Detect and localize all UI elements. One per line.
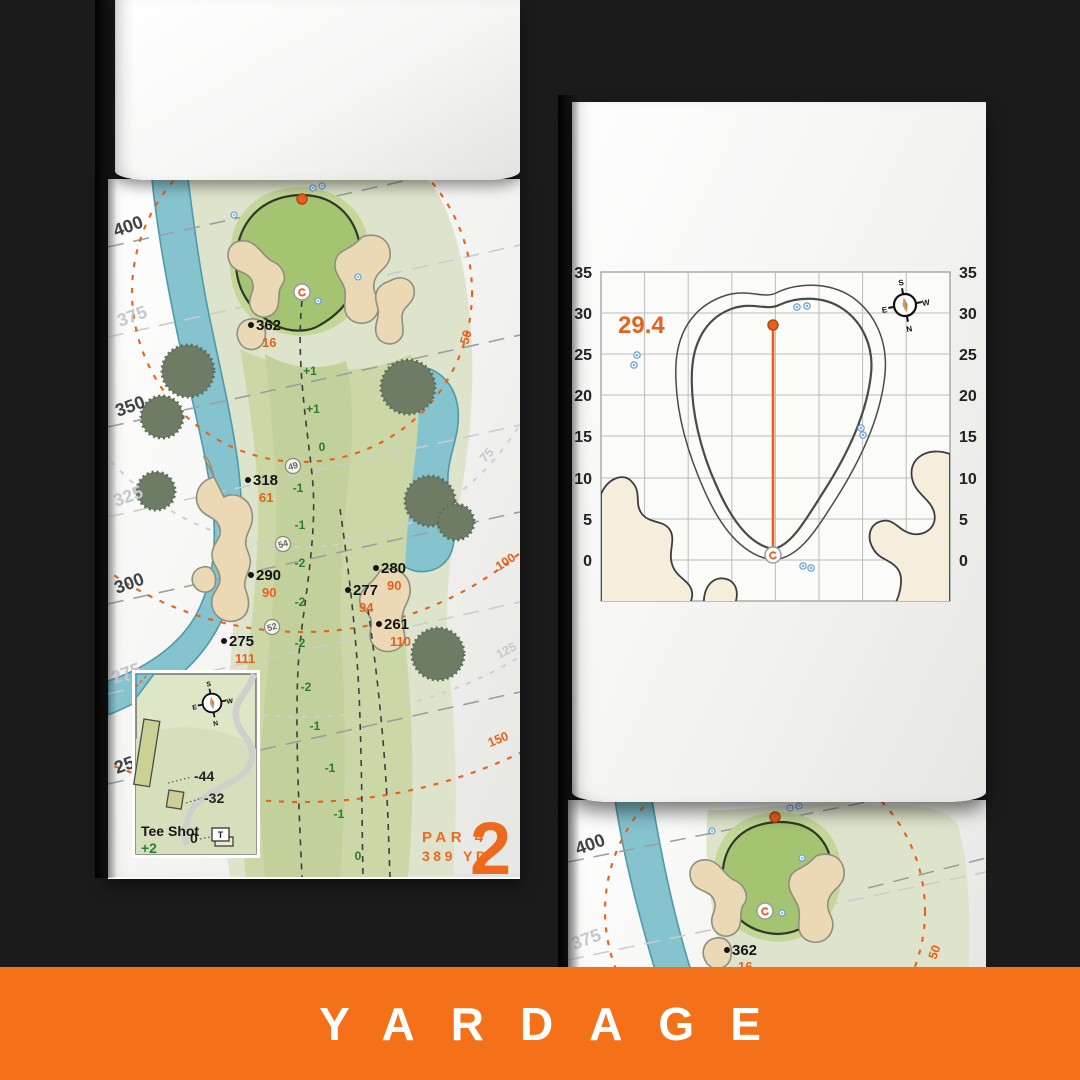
hole-map-page: 49 54 52 400 375 350 325 300 275 250	[108, 179, 520, 879]
aim-dot	[297, 194, 307, 204]
fairway-center-strip	[260, 354, 352, 877]
inset-score: +2	[141, 840, 157, 856]
svg-text:5: 5	[583, 512, 592, 529]
axis-ticks-right: 35 30 25 20 15 10 5 0	[959, 265, 977, 570]
yardage-banner: YARDAGE	[0, 967, 1080, 1080]
arc-label: 150	[486, 729, 511, 750]
long-tee-offset: -44	[194, 768, 214, 784]
front-distance: 111	[235, 651, 255, 666]
product-image: 49 54 52 400 375 350 325 300 275 250	[0, 0, 1080, 1080]
slope-label: 0	[355, 849, 362, 863]
svg-text:10: 10	[959, 471, 977, 488]
distance-label: 375	[115, 302, 150, 331]
front-distance: 16	[262, 335, 276, 350]
green-chart: 29.4 35 30 25 20 15 10 5 0 35 30 25 20	[572, 102, 986, 802]
svg-text:20: 20	[959, 388, 977, 405]
green-detail-page: 29.4 35 30 25 20 15 10 5 0 35 30 25 20	[572, 102, 986, 802]
pin-icon	[757, 903, 773, 919]
svg-text:5: 5	[959, 512, 968, 529]
hole-map: 49 54 52 400 375 350 325 300 275 250	[108, 179, 520, 877]
inset-title: Tee Shot	[141, 823, 199, 839]
carry-distance: 275	[229, 633, 254, 650]
aim-dot	[770, 812, 780, 822]
left-book-spine	[95, 0, 117, 878]
short-tee-box	[166, 790, 183, 809]
carry-distance: 362	[256, 317, 281, 334]
front-distance: 94	[359, 600, 374, 615]
carry-distance: 280	[381, 560, 406, 577]
slope-label: -2	[301, 680, 312, 694]
svg-text:0: 0	[959, 553, 968, 570]
slope-label: -1	[325, 761, 336, 775]
pin-icon	[294, 284, 310, 300]
depth-top-dot	[768, 320, 778, 330]
svg-text:0: 0	[583, 553, 592, 570]
banner-label: YARDAGE	[283, 997, 797, 1051]
next-hole-map-page: 400 375 50 362 16	[568, 800, 986, 980]
carry-distance: 277	[353, 582, 378, 599]
arc-label: 75	[477, 445, 497, 465]
tee-shot-inset: -44 -32 0 Tee Shot +2 T S	[132, 670, 260, 858]
carry-distance: 290	[256, 567, 281, 584]
front-distance: 90	[262, 585, 276, 600]
svg-text:15: 15	[959, 429, 977, 446]
carry-distance: 362	[732, 942, 757, 959]
svg-text:T: T	[218, 830, 224, 840]
next-hole-map: 400 375 50 362 16	[568, 800, 986, 980]
right-book-spine	[558, 95, 580, 980]
river	[615, 800, 694, 980]
slope-label: +1	[303, 364, 317, 378]
front-distance: 110	[390, 634, 411, 649]
short-tee-offset: -32	[204, 790, 224, 806]
front-distance: 61	[259, 490, 273, 505]
svg-text:25: 25	[959, 347, 977, 364]
slope-label: +1	[306, 402, 320, 416]
slope-label: -2	[295, 556, 306, 570]
yardage-book-left: 49 54 52 400 375 350 325 300 275 250	[95, 0, 520, 878]
slope-label: -1	[293, 481, 304, 495]
pin-icon	[765, 547, 781, 563]
hole-number: 2	[470, 807, 511, 877]
carry-distance: 261	[384, 616, 409, 633]
svg-text:30: 30	[959, 306, 977, 323]
slope-label: -2	[295, 636, 306, 650]
slope-label: -2	[295, 595, 306, 609]
svg-text:35: 35	[959, 265, 977, 282]
slope-label: -1	[334, 807, 345, 821]
flipped-blank-page	[115, 0, 520, 180]
yardage-book-right: 29.4 35 30 25 20 15 10 5 0 35 30 25 20	[558, 95, 986, 980]
front-distance: 90	[387, 578, 401, 593]
slope-label: -1	[310, 719, 321, 733]
slope-label: -1	[295, 518, 306, 532]
arc-label: 125	[494, 639, 519, 661]
carry-distance: 318	[253, 472, 278, 489]
slope-label: 0	[319, 440, 326, 454]
depth-value: 29.4	[618, 312, 665, 339]
arc-label: 50	[457, 329, 474, 346]
